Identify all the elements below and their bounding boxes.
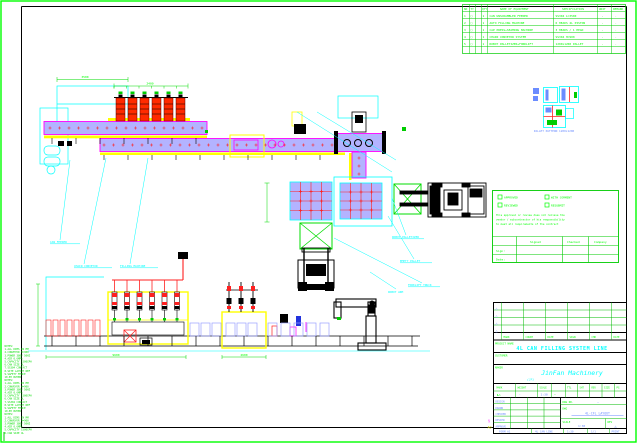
forklift-front [298, 248, 334, 291]
capper-knob [227, 298, 232, 304]
elev-enclosure [46, 277, 104, 350]
can-detail-block [533, 88, 539, 94]
filling-head-plan [140, 98, 149, 121]
company-sub: (JF) [527, 378, 534, 382]
maker-label: MAKER [495, 366, 503, 370]
callout-filling-machine: FILLING MACHINE [120, 264, 146, 268]
head-cap [131, 95, 135, 98]
valve-tip [138, 318, 141, 321]
head-band [150, 306, 155, 309]
can [307, 323, 316, 336]
company-name: JinFan Machinery [540, 369, 603, 377]
callout-palletizer: ROBOT PALLETIZER [392, 235, 419, 239]
head-band [112, 302, 117, 305]
mid-value: ◣△ [497, 392, 501, 396]
checkbox-label: WITH COMMENT [551, 196, 572, 200]
can-red [67, 320, 72, 336]
sheet-header: SIZE [604, 386, 610, 389]
cad-sheet: NO TY QTY NAME OF EQUIPMENT SPECIFICATIO… [0, 0, 637, 443]
head-tick [155, 92, 159, 95]
svg-text:to meet all requirements of th: to meet all requirements of the contract [496, 222, 559, 226]
rev-header: DATE [548, 335, 555, 339]
head-band [137, 302, 142, 305]
green-tick [402, 127, 406, 131]
col-header: QTY [482, 7, 487, 11]
parts-cell: 1 [464, 14, 466, 18]
can-detail-block [533, 96, 538, 101]
parts-cell: 2 [464, 21, 466, 25]
svg-text:This approval or review does n: This approval or review does not relieve… [496, 213, 565, 217]
parts-cell: 1 [483, 28, 485, 32]
rev-label: REV [608, 420, 613, 424]
forklift-plan [400, 183, 486, 217]
checkbox-with-comment [545, 195, 549, 199]
checkbox-resubmit [545, 203, 549, 207]
can-red [74, 320, 79, 336]
head-band [137, 306, 142, 309]
parts-cell: 1200x1200 PALLET [556, 42, 584, 46]
can-red [53, 320, 58, 336]
can-red [88, 320, 93, 336]
fork [400, 203, 428, 206]
sign-row-label: APPROVE [496, 424, 507, 428]
head-band [150, 302, 155, 305]
stamp-row-label: Date: [496, 258, 505, 262]
can-red [95, 320, 100, 336]
parts-cell: . [615, 28, 617, 32]
head-cap [179, 95, 183, 98]
col-header: UNIT [599, 7, 606, 11]
pipe-elbow [178, 252, 188, 259]
parts-cell: SS304 H=900 [556, 35, 575, 39]
notes-strip: NOTES:1.ALL DIMS IN MM2.CONVEYOR H=9003.… [5, 344, 33, 435]
sheet-header: REV [592, 386, 597, 389]
mid-label: WEIGHT [518, 386, 527, 389]
stamp-col: Checked [567, 240, 580, 244]
valve-tip [126, 318, 129, 321]
head-band [125, 302, 130, 305]
strip-cell: FORM A1 [499, 430, 511, 434]
parts-cell: □ [471, 14, 473, 18]
parts-cell: - [602, 35, 604, 39]
parts-cell: □ [471, 21, 473, 25]
head-cap [155, 95, 159, 98]
can [248, 323, 257, 336]
note-line: 6.CAN SIZE 4L [5, 431, 25, 435]
scale-label: SCALE [563, 420, 571, 424]
capper-tip [251, 286, 255, 291]
elev-leader [370, 272, 396, 289]
valve-tip [113, 318, 116, 321]
can [226, 323, 235, 336]
can [281, 323, 290, 336]
capper-tip [227, 286, 231, 291]
sheet-col-headers: TTLSHTREVSIZEPG [567, 386, 620, 389]
head-band [175, 306, 180, 309]
can-red [60, 320, 65, 336]
parts-cell: . [615, 14, 617, 18]
parts-cell: 1 [483, 21, 485, 25]
head-band [137, 293, 142, 297]
parts-cell: . [615, 21, 617, 25]
head-cap [143, 95, 147, 98]
capper-band [251, 306, 255, 309]
can-red [46, 320, 51, 336]
dim-text: 2400 [146, 82, 153, 86]
dwg-label: DWG [563, 407, 568, 411]
head-cap [167, 95, 171, 98]
callout-robot-arm: ROBOT ARM [388, 290, 403, 294]
valve-tip [163, 318, 166, 321]
capper-knob [239, 298, 244, 304]
head-band [162, 293, 167, 297]
capper-band [239, 306, 243, 309]
head-tick [119, 92, 123, 95]
col-header: SPECIFICATION [562, 7, 584, 11]
can [212, 323, 221, 336]
valve-tip [151, 318, 154, 321]
svg-text:vendor / subcontractor of his: vendor / subcontractor of his responsibi… [496, 218, 565, 222]
stamp-col: Signed [530, 240, 541, 244]
col-header: REMARK [613, 7, 623, 11]
capper-knob [251, 298, 256, 304]
parts-cell: □ [471, 28, 473, 32]
col-header: NAME OF EQUIPMENT [500, 7, 529, 11]
rev-mark: △ [496, 321, 499, 325]
detail-inset: PALLET PATTERN 1200x1200 [533, 87, 579, 134]
mid-value: · [519, 392, 521, 396]
drawing-title: 4L CAN FILLING SYSTEM LINE [516, 346, 607, 352]
parts-cell: ROBOT PALLETIZER+FORKLIFT [490, 42, 534, 46]
seamer-plan [334, 96, 386, 154]
parts-cell: - [602, 28, 604, 32]
capper-band [227, 306, 231, 309]
head-cap [119, 95, 123, 98]
parts-cell: AUTO FILLING MACHINE [490, 21, 525, 25]
filling-head-plan [152, 98, 161, 121]
parts-cell: - [602, 14, 604, 18]
filling-head-plan [164, 98, 173, 121]
fork [400, 191, 428, 194]
parts-cell: CAP PRESS+SEAMING MACHINE [490, 28, 534, 32]
strip-cell: 1/1 [591, 430, 596, 434]
head-tick [179, 92, 183, 95]
callout-forklift: FORKLIFT TRUCK [408, 283, 432, 287]
rev-mark: △ [496, 306, 499, 310]
parts-cell: . [615, 35, 617, 39]
customer-label: CUSTOMER [495, 354, 508, 358]
stamp-row-label: Sign: [496, 249, 505, 253]
parts-cell: 1 [483, 14, 485, 18]
strip-cell: 1:30 [567, 430, 574, 434]
revision-marks: △△△△ [496, 306, 499, 333]
checkbox-label: APPROVED [504, 196, 518, 200]
head-band [125, 293, 130, 297]
head-band [125, 306, 130, 309]
filling-head-plan [116, 98, 125, 121]
mid-label: SCALE [540, 386, 548, 389]
can-red [81, 320, 86, 336]
parts-cell: 3 HEADS / 1 HEAD [556, 28, 584, 32]
mid-label: MARK [497, 386, 503, 389]
stamp-box: APPROVED WITH COMMENT REVIEWED RESUBMIT … [493, 191, 619, 263]
parts-cell: 5 [464, 42, 466, 46]
plan-view: 3500 2400 CAN FEEDER CHAIN CONVEYOR FILL… [40, 75, 486, 291]
parts-cell: 1 [483, 35, 485, 39]
filling-head-plan [176, 98, 185, 121]
parts-cell: 6 HEADS 4L PISTON [556, 21, 586, 25]
parts-cell: - [602, 21, 604, 25]
stamp-note: This approval or review does not relieve… [496, 213, 565, 226]
rev-header: SIGN [570, 335, 577, 339]
callout-can-feeder: CAN FEEDER [50, 240, 67, 244]
cad-drawing: NO TY QTY NAME OF EQUIPMENT SPECIFICATIO… [0, 0, 637, 443]
head-band [175, 293, 180, 297]
infeed-motor [58, 141, 64, 146]
infeed-motor [67, 141, 72, 146]
checkbox-label: RESUBMIT [551, 204, 565, 208]
mid-value: 1:30 [541, 392, 548, 396]
can [201, 323, 210, 336]
parts-table: NO TY QTY NAME OF EQUIPMENT SPECIFICATIO… [463, 5, 626, 54]
robot-arm [334, 299, 386, 350]
title-block: △△△△ MARKCOUNTDATESIGNCHKDATE PROJECT NA… [488, 303, 627, 434]
can [268, 323, 277, 336]
mid-dash: — [554, 392, 556, 396]
dim-text: 2600 [240, 353, 247, 357]
parts-cell: □ [471, 35, 473, 39]
rev-header: CHK [592, 335, 597, 339]
parts-cell: 4 [464, 35, 466, 39]
can [237, 323, 246, 336]
strip-cell: PRINT [612, 430, 620, 434]
rev-mark: △ [496, 314, 499, 318]
callout-empty-pallet: EMPTY PALLET [400, 259, 421, 263]
head-tick [167, 92, 171, 95]
dim-text: 3500 [81, 75, 88, 79]
parts-cell: CAN UNSCRAMBLER FEEDER [490, 14, 529, 18]
checkbox-reviewed [498, 203, 502, 207]
head-band [150, 293, 155, 297]
checkbox-approved [498, 195, 502, 199]
valve-tip [176, 318, 179, 321]
capper-tip [239, 286, 243, 291]
head-band [162, 302, 167, 305]
project-label: PROJECT NAME [495, 341, 514, 345]
filling-head-plan [128, 98, 137, 121]
head-band [175, 302, 180, 305]
sign-row-label: DESIGN [496, 400, 506, 404]
corner-mark-magenta: § [488, 419, 490, 423]
head-tick [143, 92, 147, 95]
detail-label: PALLET PATTERN 1200x1200 [534, 129, 575, 133]
callout-chain-conveyor: CHAIN CONVEYOR [74, 264, 98, 268]
checkbox-label: REVIEWED [504, 204, 518, 208]
scale-value: 1:30 [578, 424, 585, 428]
can [320, 323, 329, 336]
parts-cell: CHAIN CONVEYOR SYSTEM [490, 35, 527, 39]
parts-cell: □ [471, 42, 473, 46]
rev-header: MARK [504, 335, 511, 339]
sheet-header: SHT [580, 386, 585, 389]
head-band [112, 293, 117, 297]
col-header: TY [471, 7, 475, 11]
head-band [162, 306, 167, 309]
drawing-number: 4L-CFL LAYOUT [585, 411, 610, 415]
green-tick [205, 130, 208, 133]
parts-cell: 1 [483, 42, 485, 46]
strip-cell: 4L CAN LINE [535, 430, 553, 434]
rev-value: △ [615, 424, 618, 428]
parts-table-header: NO TY QTY NAME OF EQUIPMENT SPECIFICATIO… [464, 7, 623, 11]
rev-header: COUNT [526, 335, 534, 339]
head-tick [131, 92, 135, 95]
dwg-no-label: DWG NO. [563, 400, 574, 404]
sign-row-label: CHECKED [496, 412, 507, 416]
sign-row-label: DRAWN [496, 406, 504, 410]
parts-cell: 3 [464, 28, 466, 32]
can [190, 323, 199, 336]
stamp-col: Company [594, 240, 607, 244]
dim-text: 9600 [112, 353, 119, 357]
sheet-header: TTL [567, 386, 572, 389]
corner-mark-yellow: A0 [488, 425, 492, 429]
sheet-header: PG [617, 386, 620, 389]
parts-cell: . [615, 42, 617, 46]
dwg-no-value: — [597, 400, 599, 404]
rev-header: DATE [614, 335, 621, 339]
revision-headers: MARKCOUNTDATESIGNCHKDATE [504, 335, 621, 339]
sign-row-label: REVIEW [496, 418, 506, 422]
head-band [112, 306, 117, 309]
parts-cell: - [602, 42, 604, 46]
gripper-tip [337, 317, 341, 320]
date-coder [294, 124, 306, 134]
col-header: NO [464, 7, 468, 11]
parts-cell: SS304 L=3500 [556, 14, 577, 18]
